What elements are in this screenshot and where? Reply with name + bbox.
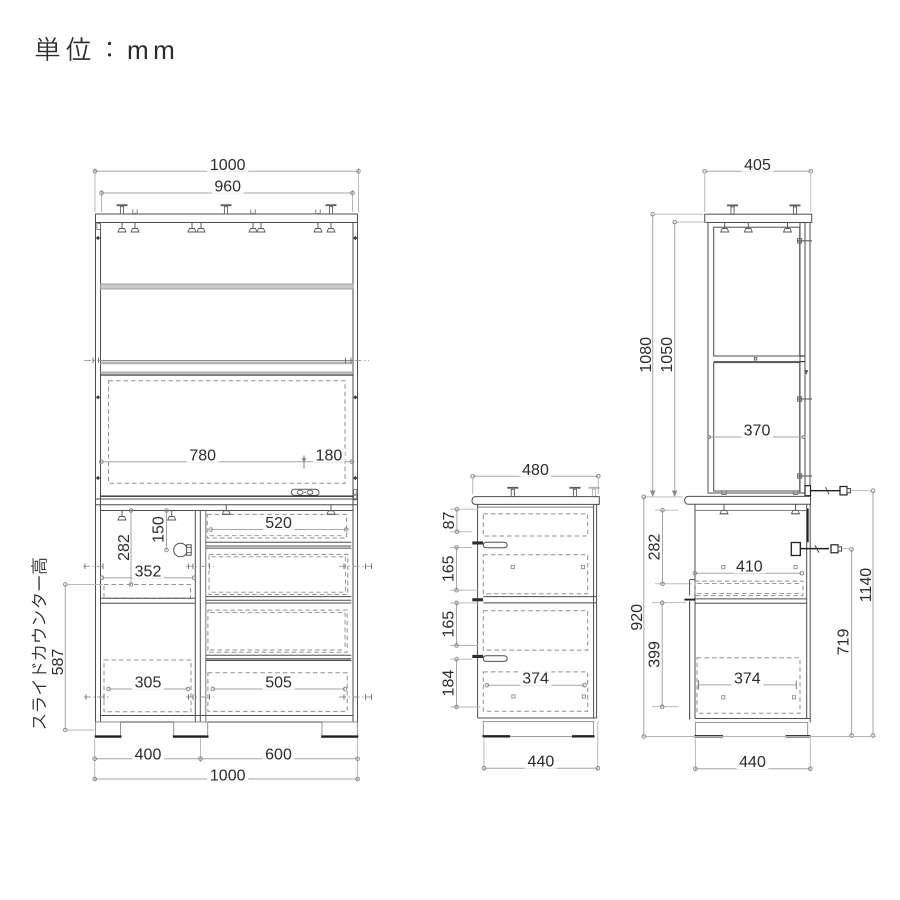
- svg-text:520: 520: [265, 515, 292, 532]
- svg-text:352: 352: [135, 563, 162, 580]
- svg-text:920: 920: [629, 604, 646, 631]
- svg-text:719: 719: [836, 628, 853, 655]
- svg-text:587: 587: [50, 649, 67, 676]
- svg-text:184: 184: [441, 670, 458, 697]
- svg-text:780: 780: [189, 447, 216, 464]
- svg-text:305: 305: [135, 675, 162, 692]
- svg-text:505: 505: [265, 675, 292, 692]
- svg-text:87: 87: [441, 512, 458, 530]
- svg-text:165: 165: [441, 555, 458, 582]
- svg-text:374: 374: [734, 671, 761, 688]
- svg-text:mm: mm: [127, 35, 179, 65]
- svg-text:1080: 1080: [638, 337, 655, 373]
- svg-text:165: 165: [441, 611, 458, 638]
- svg-text:410: 410: [736, 559, 763, 576]
- svg-text:600: 600: [265, 747, 292, 764]
- svg-text:150: 150: [150, 516, 167, 543]
- svg-text:960: 960: [214, 179, 241, 196]
- svg-text:440: 440: [528, 754, 555, 771]
- svg-text:370: 370: [744, 423, 771, 440]
- svg-text:399: 399: [647, 641, 664, 668]
- svg-text:282: 282: [116, 534, 133, 561]
- svg-text:405: 405: [744, 157, 771, 174]
- svg-text:282: 282: [647, 534, 664, 561]
- svg-text:1140: 1140: [858, 568, 875, 603]
- svg-text:1050: 1050: [659, 337, 676, 373]
- svg-text:400: 400: [135, 747, 162, 764]
- svg-text:1000: 1000: [210, 768, 246, 785]
- svg-text:374: 374: [522, 671, 549, 688]
- svg-text:180: 180: [316, 447, 343, 464]
- svg-text:480: 480: [522, 462, 549, 479]
- svg-text:1000: 1000: [210, 157, 246, 174]
- svg-text:440: 440: [739, 754, 766, 771]
